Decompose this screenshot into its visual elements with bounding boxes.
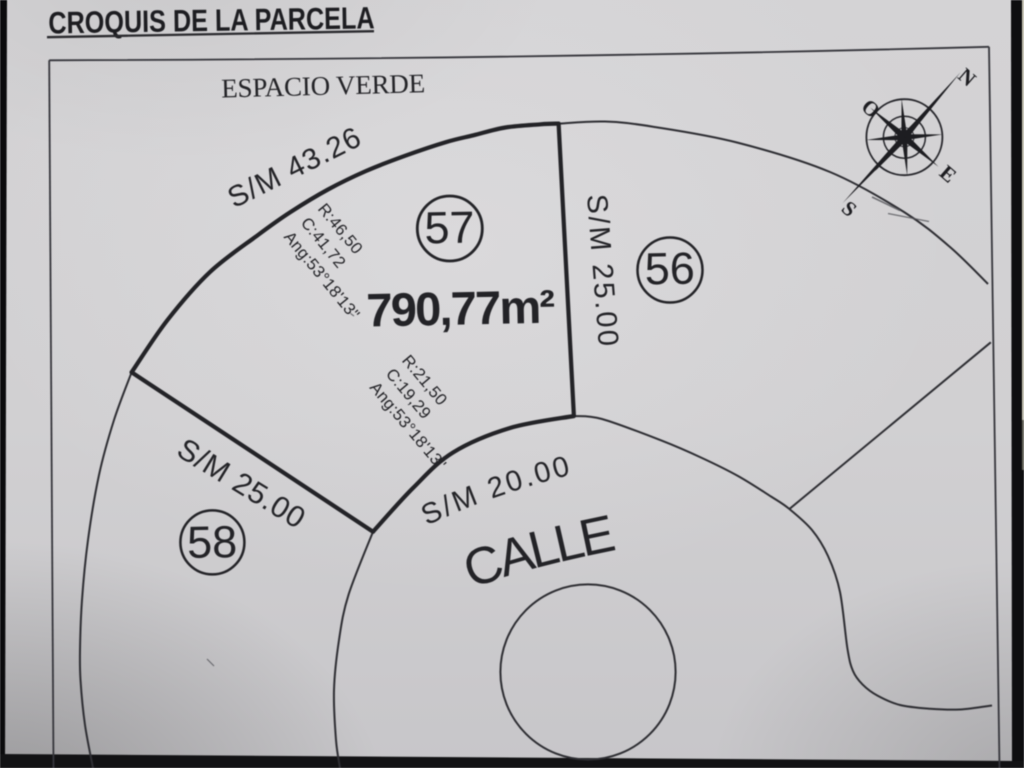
svg-text:N: N <box>953 63 980 91</box>
svg-text:790,77m²: 790,77m² <box>366 280 555 337</box>
svg-text:E: E <box>935 160 961 187</box>
svg-text:S: S <box>837 196 862 222</box>
svg-text:S/M 25.00: S/M 25.00 <box>580 193 624 350</box>
svg-text:58: 58 <box>187 516 238 568</box>
svg-text:O: O <box>857 94 885 123</box>
svg-text:56: 56 <box>644 243 695 295</box>
svg-text:S/M 43.26: S/M 43.26 <box>222 120 367 214</box>
svg-text:57: 57 <box>424 202 475 254</box>
svg-text:ESPACIO VERDE: ESPACIO VERDE <box>221 68 425 103</box>
